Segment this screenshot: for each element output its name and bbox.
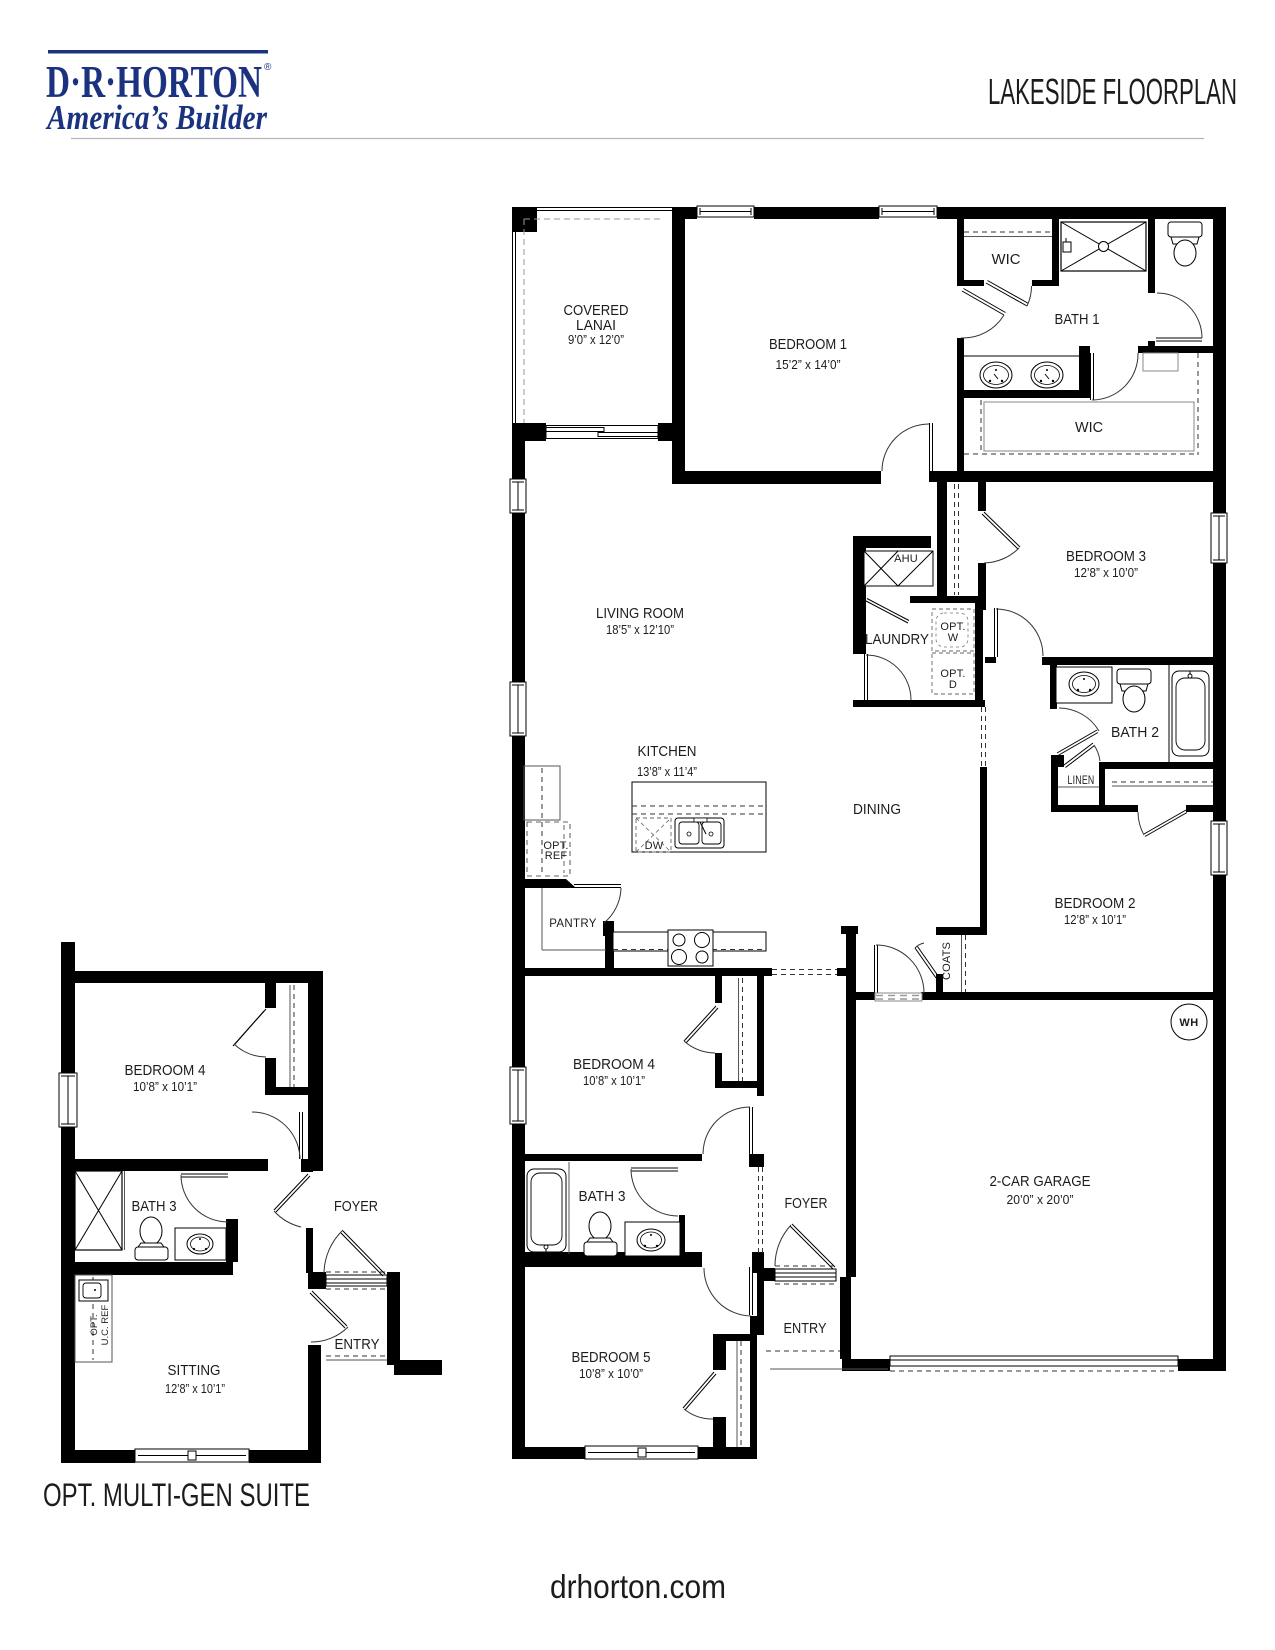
svg-text:WIC: WIC — [1075, 419, 1103, 436]
svg-text:FOYER: FOYER — [334, 1198, 378, 1215]
svg-text:KITCHEN: KITCHEN — [638, 743, 697, 760]
svg-text:COATS: COATS — [941, 942, 953, 980]
svg-text:AHU: AHU — [894, 553, 918, 565]
svg-text:ENTRY: ENTRY — [784, 1320, 827, 1337]
svg-text:BEDROOM 3: BEDROOM 3 — [1066, 548, 1146, 565]
svg-text:D: D — [949, 679, 957, 691]
svg-text:FOYER: FOYER — [785, 1195, 828, 1212]
svg-text:WIC: WIC — [992, 251, 1021, 268]
svg-text:BEDROOM 1: BEDROOM 1 — [769, 336, 847, 353]
svg-text:LAUNDRY: LAUNDRY — [865, 631, 929, 648]
svg-text:12’8” x 10’1”: 12’8” x 10’1” — [1064, 912, 1126, 927]
svg-text:drhorton.com: drhorton.com — [550, 1568, 726, 1605]
svg-text:BEDROOM 4: BEDROOM 4 — [573, 1056, 655, 1073]
svg-text:BATH 3: BATH 3 — [132, 1198, 177, 1215]
svg-text:18’5” x 12’10”: 18’5” x 12’10” — [606, 622, 674, 637]
svg-text:OPT. MULTI-GEN SUITE: OPT. MULTI-GEN SUITE — [43, 1477, 310, 1513]
svg-text:DW: DW — [645, 840, 664, 852]
svg-text:BEDROOM 2: BEDROOM 2 — [1055, 895, 1136, 912]
svg-text:DINING: DINING — [853, 801, 901, 818]
svg-text:12’8” x 10’0”: 12’8” x 10’0” — [1074, 565, 1138, 580]
svg-text:10’8” x 10’1”: 10’8” x 10’1” — [133, 1079, 197, 1094]
svg-text:WH: WH — [1179, 1017, 1198, 1029]
svg-text:ENTRY: ENTRY — [335, 1336, 380, 1353]
svg-text:20’0” x 20’0”: 20’0” x 20’0” — [1007, 1192, 1074, 1207]
svg-text:®: ® — [264, 62, 272, 73]
svg-text:REF: REF — [545, 850, 568, 862]
svg-text:13’8” x 11’4”: 13’8” x 11’4” — [637, 764, 697, 779]
svg-text:10’8” x 10’1”: 10’8” x 10’1” — [583, 1073, 645, 1088]
svg-text:W: W — [948, 632, 959, 644]
svg-text:BEDROOM 4: BEDROOM 4 — [125, 1062, 206, 1079]
svg-text:BATH 2: BATH 2 — [1111, 724, 1159, 741]
svg-text:America’s Builder: America’s Builder — [45, 98, 267, 137]
svg-text:BATH 3: BATH 3 — [579, 1188, 626, 1205]
svg-text:12’8” x 10’1”: 12’8” x 10’1” — [165, 1381, 225, 1396]
svg-text:15’2” x 14’0”: 15’2” x 14’0” — [776, 357, 841, 372]
svg-text:OPT.: OPT. — [89, 1314, 100, 1335]
svg-text:9’0” x 12’0”: 9’0” x 12’0” — [568, 332, 624, 347]
svg-text:PANTRY: PANTRY — [549, 918, 596, 930]
svg-text:10’8” x 10’0”: 10’8” x 10’0” — [579, 1366, 643, 1381]
svg-text:U.C. REF: U.C. REF — [100, 1304, 111, 1345]
svg-text:BATH 1: BATH 1 — [1055, 311, 1100, 328]
svg-text:BEDROOM 5: BEDROOM 5 — [572, 1349, 651, 1366]
svg-text:SITTING: SITTING — [168, 1362, 221, 1379]
svg-text:LINEN: LINEN — [1068, 775, 1095, 787]
svg-text:LAKESIDE FLOORPLAN: LAKESIDE FLOORPLAN — [988, 71, 1237, 112]
svg-text:LIVING ROOM: LIVING ROOM — [596, 605, 684, 622]
svg-text:2-CAR GARAGE: 2-CAR GARAGE — [990, 1173, 1091, 1190]
